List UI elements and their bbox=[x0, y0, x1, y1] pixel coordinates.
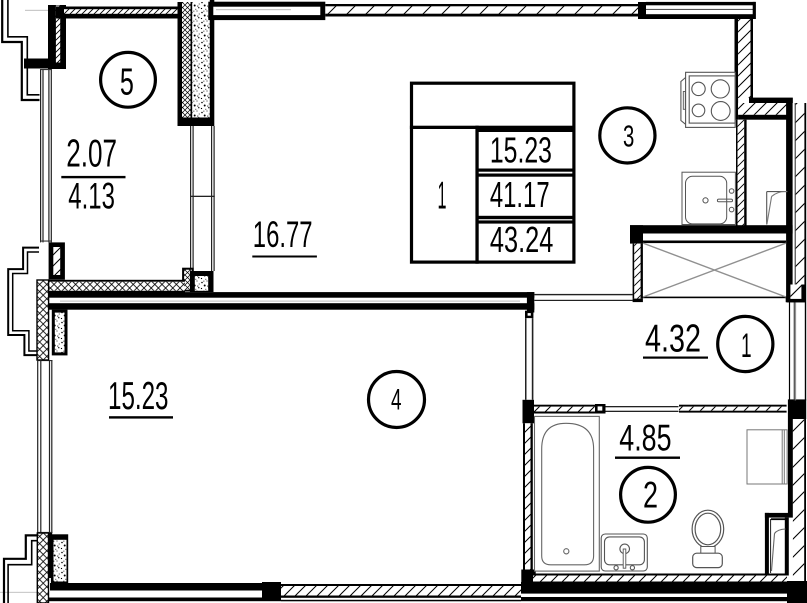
svg-text:1: 1 bbox=[438, 174, 447, 217]
svg-text:4.85: 4.85 bbox=[619, 417, 671, 459]
svg-text:4.32: 4.32 bbox=[645, 318, 701, 361]
svg-text:41.17: 41.17 bbox=[490, 174, 550, 215]
svg-text:4: 4 bbox=[391, 384, 402, 417]
svg-text:16.77: 16.77 bbox=[253, 213, 313, 255]
svg-text:1: 1 bbox=[741, 327, 752, 365]
svg-text:5: 5 bbox=[120, 61, 134, 103]
svg-text:4.13: 4.13 bbox=[68, 175, 115, 216]
svg-text:15.23: 15.23 bbox=[490, 130, 552, 171]
svg-text:3: 3 bbox=[623, 119, 634, 154]
svg-text:2.07: 2.07 bbox=[66, 133, 117, 176]
svg-text:43.24: 43.24 bbox=[490, 219, 553, 260]
svg-text:15.23: 15.23 bbox=[108, 375, 169, 418]
svg-text:2: 2 bbox=[643, 475, 658, 516]
